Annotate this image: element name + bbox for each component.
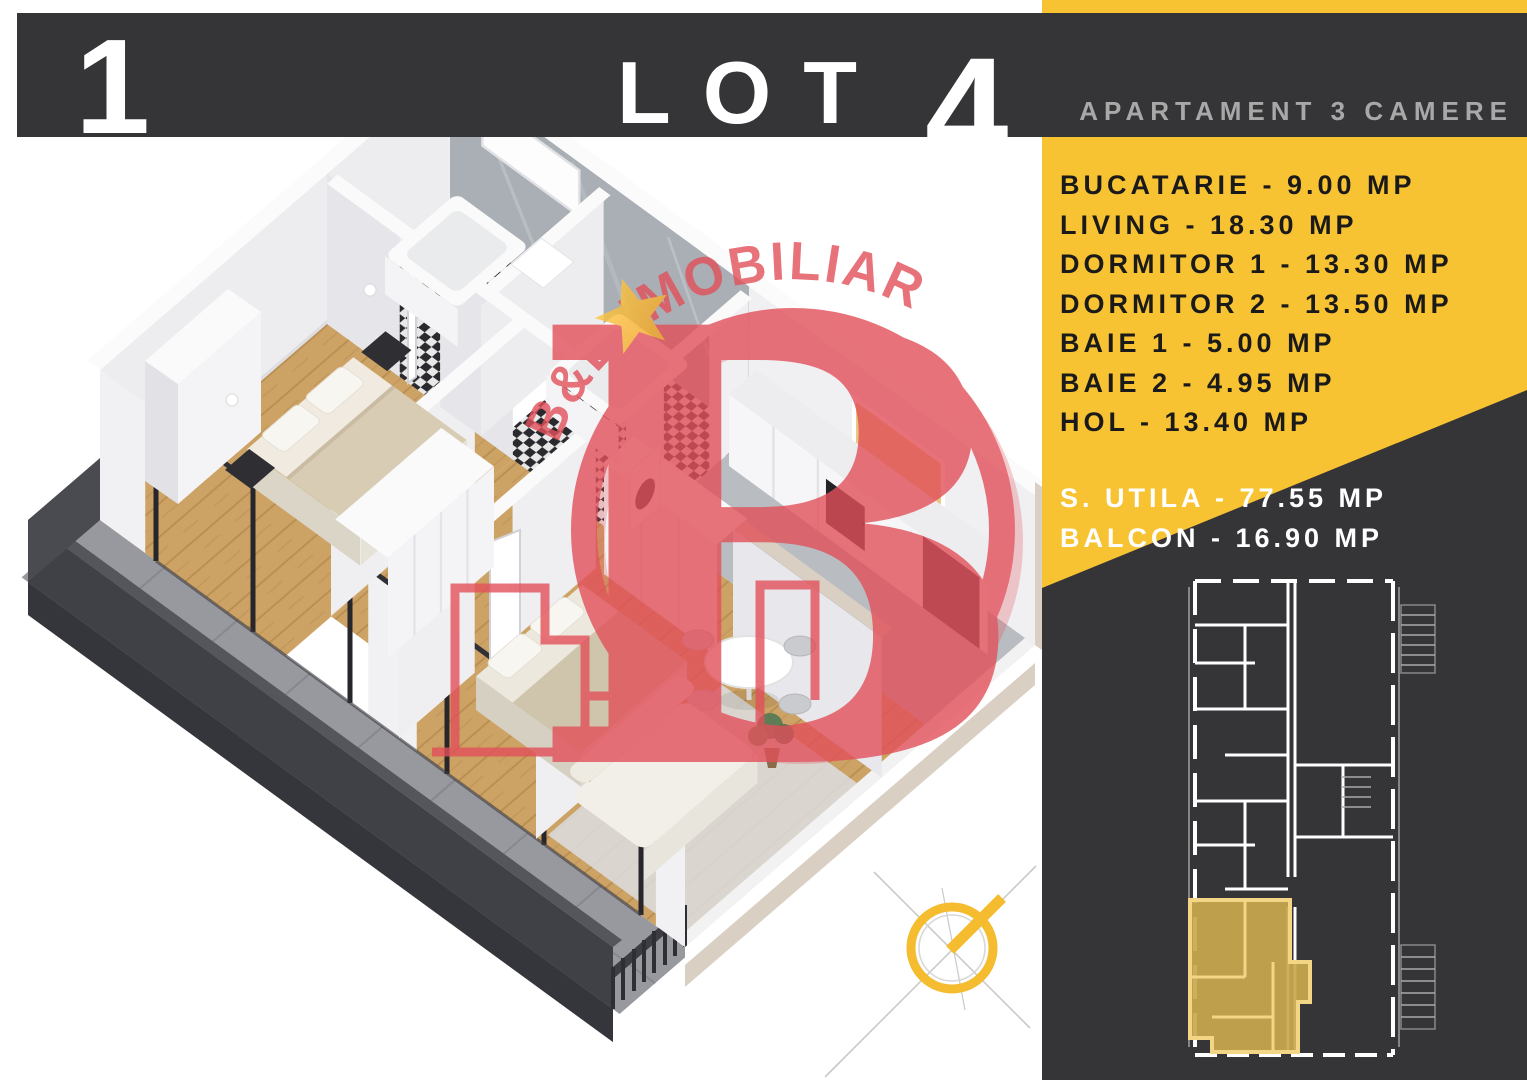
lamp [226,394,238,406]
header-bar: 1 LOT 4 APARTAMENT 3 CAMERE [17,13,1527,137]
minimap-highlight-unit [1190,900,1310,1052]
info-panel: BUCATARIE - 9.00 MP LIVING - 18.30 MP DO… [1042,0,1527,1080]
room-line: DORMITOR 1 - 13.30 MP [1060,245,1453,285]
room-line: BAIE 1 - 5.00 MP [1060,324,1453,364]
apartment-subtitle: APARTAMENT 3 CAMERE [1079,96,1513,127]
minimap-stairs [1341,605,1435,1029]
room-line: HOL - 13.40 MP [1060,403,1453,443]
room-line: LIVING - 18.30 MP [1060,206,1453,246]
lamp [364,284,376,296]
lot-number: 4 [925,35,1008,185]
room-line: BUCATARIE - 9.00 MP [1060,166,1453,206]
room-list: BUCATARIE - 9.00 MP LIVING - 18.30 MP DO… [1060,166,1453,443]
floor-number: 1 [75,19,150,154]
building-minimap [1185,577,1495,1062]
room-line: BAIE 2 - 4.95 MP [1060,364,1453,404]
summary-line: S. UTILA - 77.55 MP [1060,478,1387,518]
room-line: DORMITOR 2 - 13.50 MP [1060,285,1453,325]
area-summary: S. UTILA - 77.55 MP BALCON - 16.90 MP [1060,478,1387,558]
summary-line: BALCON - 16.90 MP [1060,518,1387,558]
lot-label: LOT [617,49,889,137]
flyer-page: B B&B IMOBILIARE 1 LOT 4 [0,0,1527,1080]
